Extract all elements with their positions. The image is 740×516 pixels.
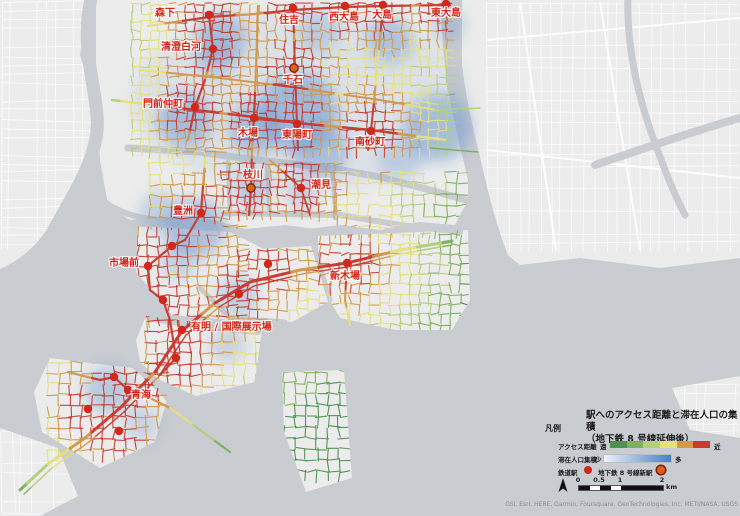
station-label: 有明 / 国際展示場	[191, 323, 272, 333]
scalebar-tick-2: 2	[660, 476, 665, 484]
station-dot[interactable]	[264, 260, 272, 268]
access-near-label: 近	[714, 441, 721, 451]
station-label: 大島	[372, 11, 392, 21]
station-label: 市場前	[109, 259, 139, 269]
station-dot[interactable]	[84, 405, 92, 413]
station-dot[interactable]	[379, 1, 387, 9]
station-label: 新木場	[330, 272, 360, 282]
new-station-dot[interactable]	[290, 64, 298, 72]
station-dot[interactable]	[235, 290, 243, 298]
map-viewport[interactable]: 森下住吉西大島大島東大島清澄白河千石門前仲町木場東陽町南砂町枝川潮見豊洲市場前新…	[0, 0, 740, 516]
scalebar-bar	[578, 485, 664, 491]
station-label: 千石	[283, 76, 303, 86]
station-dot[interactable]	[168, 242, 176, 250]
station-dot[interactable]	[442, 0, 450, 8]
station-label: 潮見	[311, 181, 331, 191]
station-label: 清澄白河	[161, 43, 201, 53]
station-dot[interactable]	[191, 103, 199, 111]
station-dot[interactable]	[289, 4, 297, 12]
station-label: 木場	[238, 129, 258, 139]
population-high-label: 多	[675, 454, 682, 464]
access-far-label: 遠	[600, 441, 607, 451]
rail-station-dot	[584, 466, 592, 474]
station-dot[interactable]	[205, 11, 213, 19]
scalebar-tick-05: 0.5	[593, 476, 605, 484]
access-color-swatch	[627, 441, 644, 448]
station-label: 東大島	[431, 9, 461, 19]
access-color-swatch	[610, 441, 627, 448]
station-dot[interactable]	[159, 296, 167, 304]
station-label: 青海	[131, 391, 151, 401]
station-dot[interactable]	[250, 114, 258, 122]
legend-section-label: 凡例	[545, 423, 561, 434]
station-label: 豊洲	[173, 207, 193, 217]
station-dot[interactable]	[178, 326, 186, 334]
station-dot[interactable]	[367, 127, 375, 135]
access-distance-colorbar	[610, 441, 710, 448]
station-label: 南砂町	[355, 138, 385, 148]
station-dot[interactable]	[144, 262, 152, 270]
station-label: 枝川	[243, 171, 263, 181]
new-station-dot[interactable]	[247, 184, 255, 192]
station-dot[interactable]	[293, 120, 301, 128]
scalebar-tick-0: 0	[576, 476, 581, 484]
station-dot[interactable]	[115, 427, 123, 435]
station-label: 門前仲町	[143, 100, 183, 110]
map-attribution: GSI, Esri, HERE, Garmin, Foursquare, Geo…	[505, 501, 738, 508]
north-arrow-icon	[558, 478, 568, 493]
station-dot[interactable]	[110, 373, 118, 381]
population-colorbar	[603, 454, 672, 463]
access-color-swatch	[693, 441, 710, 448]
scalebar: 0 0.5 1 2 km	[540, 476, 740, 498]
station-dot[interactable]	[172, 354, 180, 362]
access-distance-label: アクセス距離	[558, 441, 597, 451]
station-label: 西大島	[329, 13, 359, 23]
access-color-swatch	[643, 441, 660, 448]
population-low-label: 少	[595, 454, 602, 464]
station-dot[interactable]	[297, 184, 305, 192]
new-station-dot	[657, 466, 665, 474]
scalebar-unit: km	[666, 483, 677, 491]
station-label: 森下	[155, 9, 175, 19]
station-dot[interactable]	[343, 259, 351, 267]
station-dot[interactable]	[197, 209, 205, 217]
access-color-swatch	[660, 441, 677, 448]
population-label: 滞在人口集積	[558, 454, 597, 464]
station-label: 東陽町	[282, 131, 312, 141]
station-dot[interactable]	[209, 45, 217, 53]
access-color-swatch	[677, 441, 694, 448]
station-dot[interactable]	[341, 2, 349, 10]
scalebar-tick-1: 1	[618, 476, 623, 484]
legend-title-line1: 駅へのアクセス距離と滞在人口の集積	[586, 410, 740, 434]
station-label: 住吉	[279, 16, 299, 26]
legend: 駅へのアクセス距離と滞在人口の集積 （地下鉄 8 号線延伸後） 凡例 アクセス距…	[540, 402, 740, 514]
